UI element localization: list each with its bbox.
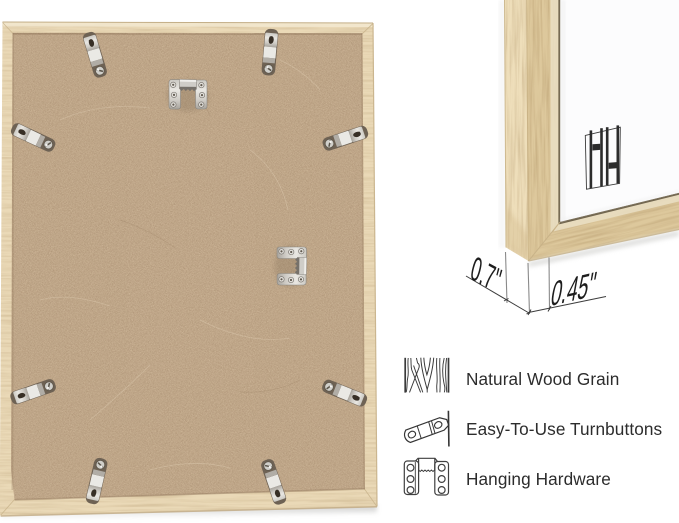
svg-text:Natural Wood Grain: Natural Wood Grain	[466, 369, 619, 389]
svg-text:Hanging Hardware: Hanging Hardware	[466, 469, 611, 489]
svg-text:Easy-To-Use Turnbuttons: Easy-To-Use Turnbuttons	[466, 419, 662, 439]
